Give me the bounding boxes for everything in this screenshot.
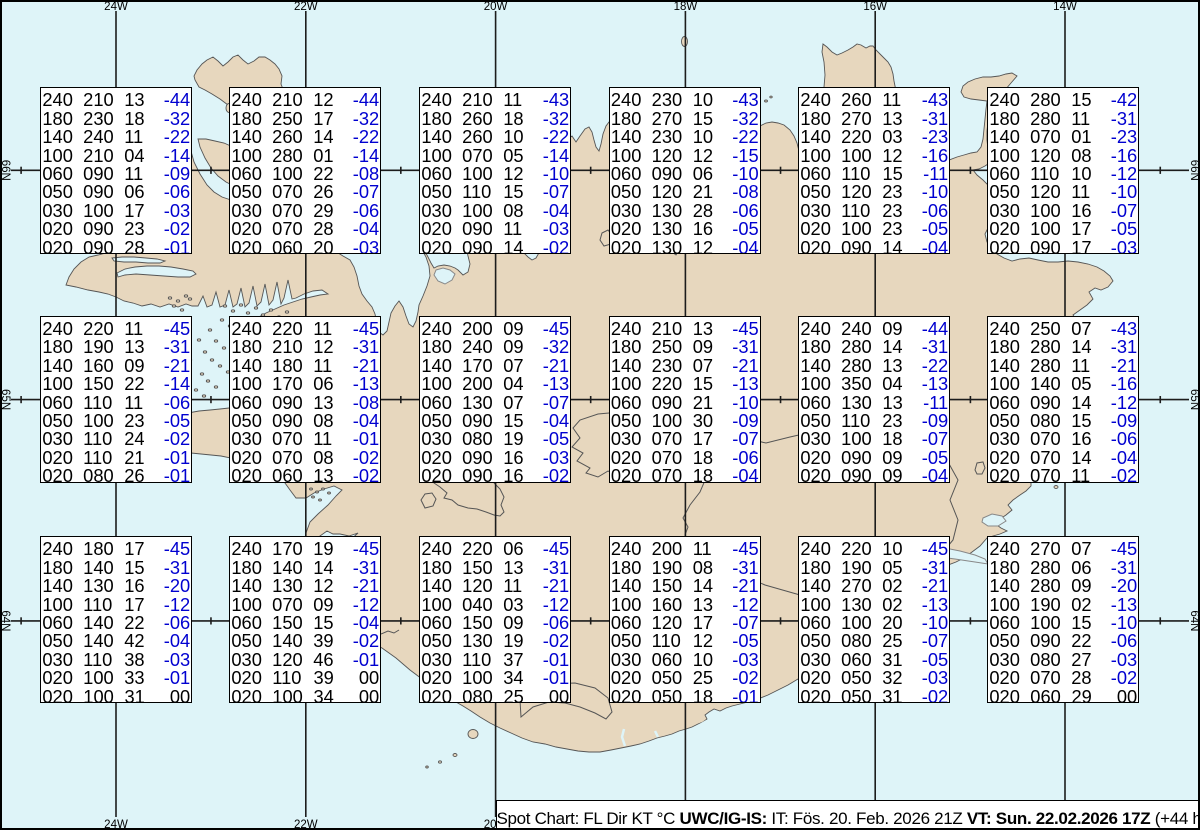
svg-text:20W: 20W [484,1,508,13]
svg-text:22W: 22W [294,1,318,13]
svg-text:18W: 18W [674,1,698,13]
svg-text:24W: 24W [104,1,128,13]
svg-text:16W: 16W [863,1,887,13]
svg-text:14W: 14W [1053,1,1077,13]
